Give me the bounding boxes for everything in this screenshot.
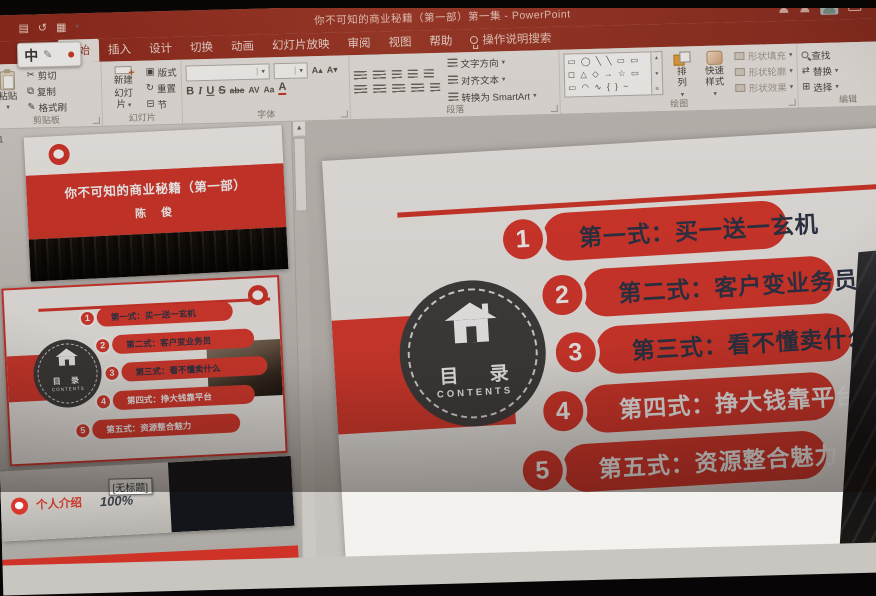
tab-insert[interactable]: 插入 (99, 38, 141, 62)
tab-slideshow[interactable]: 幻灯片放映 (263, 33, 339, 58)
numbering-icon[interactable] (373, 70, 386, 80)
quick-styles-button[interactable]: 快速样式 ▾ (700, 49, 729, 100)
slide-3-title: 个人介绍 (36, 494, 83, 512)
ime-indicator[interactable]: 中 ✎ (17, 41, 82, 68)
layout-icon: ▣ (146, 66, 155, 77)
slide-1-number: 1 (0, 134, 4, 144)
smartart-icon (448, 92, 458, 102)
paragraph-dialog-launcher[interactable] (551, 105, 558, 112)
scroll-up-arrow[interactable]: ▲ (293, 121, 305, 135)
tab-view[interactable]: 视图 (379, 30, 421, 54)
text-direction-button[interactable]: 文字方向▾ (447, 54, 535, 70)
section-icon: ⊟ (146, 98, 154, 109)
shapes-gallery[interactable]: ▭ ◯ ╲ ╲ ▭ ▭ ◻ △ ◇ → ☆ ▭ ▭ ◠ ∿ { } ~ ▴▾≡ (563, 51, 663, 98)
toc-item-2-text: 第二式：客户变业务员 (617, 260, 859, 308)
group-font: ▾ ▾ A▴ A▾ B I U S abc AV Aa A 字体 (181, 55, 351, 123)
slides-group-label: 幻灯片 (103, 110, 182, 125)
columns-icon[interactable] (430, 82, 440, 92)
reset-button[interactable]: ↻重置 (146, 80, 177, 95)
shape-effects-button[interactable]: 形状效果▾ (736, 80, 794, 96)
ime-mode-label: 中 (24, 45, 39, 65)
quick-styles-icon (706, 50, 722, 64)
shape-fill-icon (735, 52, 745, 60)
slide-thumbnail-panel: 1 你不可知的商业秘籍（第一部） 陈 俊 目 录 CONTENTS (0, 122, 302, 566)
group-editing: 查找 ⇄替换▾ ⊞选择▾ 编辑 (797, 41, 876, 108)
home-icon (55, 348, 78, 367)
slide-editor-canvas[interactable]: 目 录 CONTENTS 1 第一式：买一送一玄机 2 第二式：客户变业务员 3… (305, 106, 876, 557)
select-icon: ⊞ (802, 81, 810, 92)
align-left-icon[interactable] (354, 84, 367, 94)
tab-animations[interactable]: 动画 (222, 35, 264, 59)
home-icon (444, 301, 498, 346)
tell-me-label: 操作说明搜索 (482, 30, 551, 48)
toc-item-1-text: 第一式：买一送一玄机 (578, 205, 820, 253)
cut-button[interactable]: ✂剪切 (27, 67, 67, 82)
justify-icon[interactable] (411, 83, 424, 93)
align-right-icon[interactable] (392, 83, 405, 93)
current-slide[interactable]: 目 录 CONTENTS 1 第一式：买一送一玄机 2 第二式：客户变业务员 3… (322, 125, 876, 557)
decrease-indent-icon[interactable] (392, 69, 402, 79)
align-center-icon[interactable] (373, 84, 386, 94)
font-size-combobox[interactable]: ▾ (273, 62, 307, 79)
tell-me-search[interactable]: 操作说明搜索 (461, 27, 560, 53)
line-spacing-icon[interactable] (424, 69, 434, 79)
text-direction-icon (447, 58, 457, 68)
toc-item-2-number: 2 (537, 270, 588, 321)
slide-1-author: 陈 俊 (27, 198, 285, 227)
save-icon[interactable]: ▤ (18, 21, 29, 34)
shapes-gallery-scroll[interactable]: ▴▾≡ (651, 51, 663, 95)
shrink-font-button[interactable]: A▾ (327, 64, 338, 75)
strikethrough-button[interactable]: abc (230, 85, 245, 95)
drawing-dialog-launcher[interactable] (789, 99, 796, 106)
shape-outline-icon (735, 68, 745, 76)
replace-icon: ⇄ (802, 65, 810, 76)
copy-icon: ⧉ (27, 86, 34, 97)
thumbnail-slide-2-selected[interactable]: 目 录 CONTENTS 1第一式：买一送一玄机 2第二式：客户变业务员 3第三… (1, 275, 287, 466)
tooltip: [无标题] (108, 478, 152, 496)
editing-group-label: 编辑 (798, 91, 876, 107)
tab-transitions[interactable]: 切换 (181, 36, 223, 60)
workspace: 1 你不可知的商业秘籍（第一部） 陈 俊 目 录 CONTENTS (0, 106, 876, 566)
customize-qat-icon[interactable]: ▾ (75, 22, 79, 30)
company-logo (48, 144, 70, 166)
shapes-row-2: ◻ △ ◇ → ☆ ▭ (568, 67, 648, 82)
ime-red-dot-icon (68, 51, 74, 57)
company-logo (11, 497, 29, 515)
underline-button[interactable]: U (206, 84, 214, 96)
toc-item-4-number: 4 (538, 386, 589, 437)
font-color-button[interactable]: A (278, 82, 286, 95)
thumbnail-slide-3[interactable]: 个人介绍 100% (0, 456, 295, 542)
bold-button[interactable]: B (186, 85, 194, 97)
toc-item-2[interactable]: 2 第二式：客户变业务员 (581, 255, 835, 318)
toc-item-3-text: 第三式：看不懂卖什么 (631, 318, 873, 366)
group-paragraph: 文字方向▾ 对齐文本▾ 转换为 SmartArt▾ 段落 (349, 50, 561, 119)
change-case-button[interactable]: Aa (263, 84, 274, 94)
tab-review[interactable]: 审阅 (338, 31, 380, 55)
group-clipboard: 粘贴 ▾ ✂剪切 ⧉复制 ✎格式刷 剪贴板 (0, 62, 103, 129)
bullets-icon[interactable] (354, 70, 367, 80)
tab-design[interactable]: 设计 (140, 37, 182, 61)
toc-item-5-number: 5 (517, 445, 568, 496)
ime-pen-icon: ✎ (43, 48, 53, 61)
toc-item-5-text: 第五式：资源整合魅力 (598, 436, 840, 484)
toc-item-4-text: 第四式：挣大钱靠平台 (618, 377, 860, 425)
find-button[interactable]: 查找 (801, 46, 876, 62)
toc-item-3[interactable]: 3 第三式：看不懂卖什么 (594, 312, 852, 375)
quick-access-toolbar: ▤ ↺ ▦ ▾ (18, 20, 79, 35)
slide-3-red-band (2, 545, 298, 565)
paste-button[interactable]: 粘贴 ▾ (0, 68, 22, 116)
dark-portrait-photo (168, 456, 294, 533)
layout-button[interactable]: ▣版式 (145, 64, 176, 79)
cut-icon: ✂ (27, 69, 35, 80)
toc-item-1[interactable]: 1 第一式：买一送一玄机 (542, 200, 788, 262)
mini-toc-item-4: 4第四式：挣大钱靠平台 (112, 384, 255, 410)
grow-font-button[interactable]: A▴ (312, 64, 323, 75)
shape-fill-button[interactable]: 形状填充▾ (735, 48, 793, 64)
company-logo (247, 285, 268, 306)
clipboard-dialog-launcher[interactable] (93, 117, 100, 124)
arrange-icon (673, 51, 689, 65)
shape-effects-icon (736, 84, 746, 92)
start-slideshow-icon[interactable]: ▦ (56, 20, 67, 33)
paste-icon (0, 71, 15, 90)
character-spacing-button[interactable]: AV (248, 84, 259, 94)
arrange-button[interactable]: 排列 ▾ (669, 50, 694, 101)
new-slide-icon (115, 66, 132, 75)
italic-button[interactable]: I (198, 85, 203, 97)
new-slide-button[interactable]: 新建 幻灯片 ▾ (105, 65, 141, 113)
toc-item-1-number: 1 (498, 214, 549, 265)
section-button[interactable]: ⊟节 (146, 96, 177, 111)
slide-1-title: 你不可知的商业秘籍（第一部） (26, 172, 285, 204)
align-text-button[interactable]: 对齐文本▾ (448, 71, 536, 87)
toc-item-4[interactable]: 4 第四式：挣大钱靠平台 (582, 371, 836, 434)
powerpoint-window: ▤ ↺ ▦ ▾ 你不可知的商业秘籍（第一部）第一集 - PowerPoint —… (0, 0, 876, 595)
reset-icon: ↻ (146, 82, 154, 93)
lightbulb-icon (469, 36, 477, 44)
find-icon (801, 51, 808, 58)
format-painter-icon: ✎ (27, 101, 35, 112)
replace-button[interactable]: ⇄替换▾ (802, 62, 876, 78)
group-drawing: ▭ ◯ ╲ ╲ ▭ ▭ ◻ △ ◇ → ☆ ▭ ▭ ◠ ∿ { } ~ ▴▾≡ … (559, 44, 799, 114)
font-dialog-launcher[interactable] (341, 110, 348, 117)
font-name-combobox[interactable]: ▾ (186, 63, 270, 81)
group-slides: 新建 幻灯片 ▾ ▣版式 ↻重置 ⊟节 幻灯片 (101, 60, 183, 126)
thumbnail-slide-1[interactable]: 你不可知的商业秘籍（第一部） 陈 俊 (24, 125, 289, 281)
shape-outline-button[interactable]: 形状轮廓▾ (735, 64, 793, 80)
tab-help[interactable]: 帮助 (420, 29, 462, 53)
shadow-strike-button[interactable]: S (218, 84, 226, 96)
undo-icon[interactable]: ↺ (38, 21, 48, 34)
shapes-row-3: ▭ ◠ ∿ { } ~ (568, 80, 648, 95)
toc-title-cn: 目 录 (400, 356, 547, 392)
mini-toc-item-5: 5第五式：资源整合魅力 (92, 413, 241, 439)
copy-button[interactable]: ⧉复制 (27, 83, 67, 98)
toc-title-en: CONTENTS (402, 383, 548, 403)
clipboard-group-label: 剪贴板 (0, 112, 102, 128)
toc-item-5[interactable]: 5 第五式：资源整合魅力 (561, 430, 827, 494)
increase-indent-icon[interactable] (408, 69, 418, 79)
toc-item-3-number: 3 (550, 327, 601, 378)
monitor-bezel (0, 0, 876, 8)
align-text-icon (448, 75, 458, 85)
